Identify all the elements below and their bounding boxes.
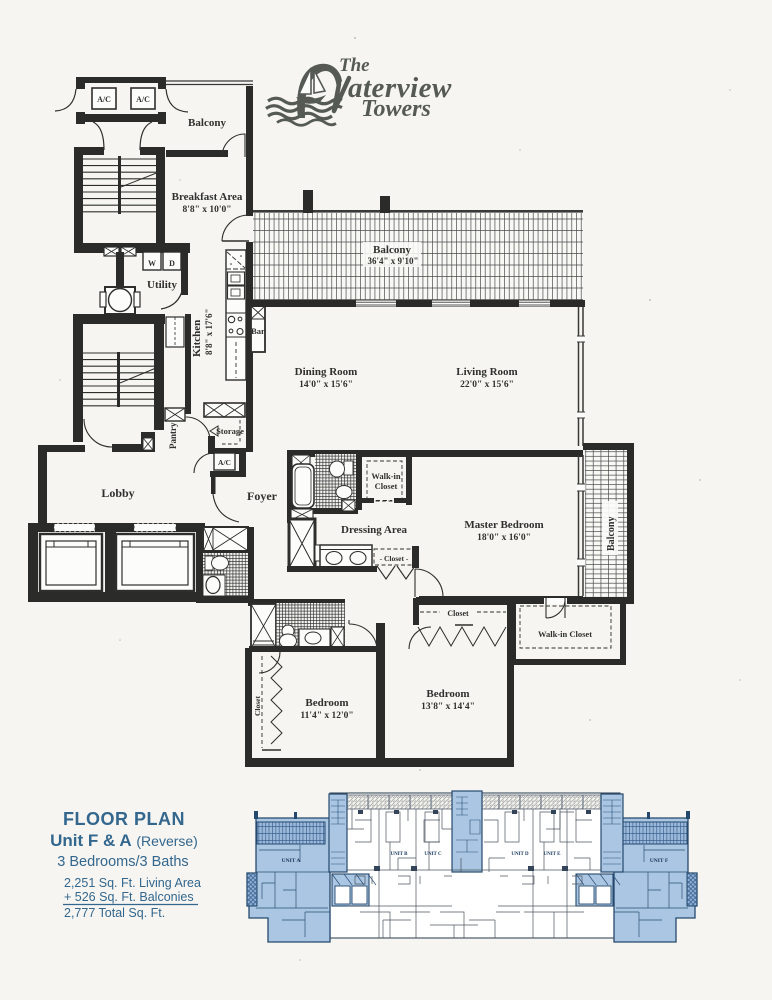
svg-text:Walk-in Closet: Walk-in Closet: [538, 629, 592, 639]
svg-text:Pantry: Pantry: [168, 422, 178, 449]
svg-text:UNIT A: UNIT A: [282, 858, 301, 864]
svg-text:+ 526 Sq. Ft. Balconies: + 526 Sq. Ft. Balconies: [64, 890, 194, 904]
svg-text:Closet: Closet: [253, 696, 262, 716]
svg-text:Storage: Storage: [216, 426, 244, 436]
svg-text:UNIT F: UNIT F: [650, 858, 669, 864]
svg-text:Living Room: Living Room: [456, 366, 517, 378]
svg-text:A/C: A/C: [97, 95, 111, 104]
svg-text:Master Bedroom: Master Bedroom: [464, 519, 543, 531]
svg-text:11'4" x 12'0": 11'4" x 12'0": [300, 711, 353, 721]
svg-text:8'8" x 10'0": 8'8" x 10'0": [182, 205, 231, 215]
svg-text:Closet: Closet: [375, 481, 398, 491]
svg-text:Bedroom: Bedroom: [426, 688, 469, 700]
svg-text:UNIT D: UNIT D: [511, 852, 529, 857]
svg-text:Balcony: Balcony: [188, 117, 226, 129]
svg-text:W: W: [148, 259, 156, 268]
svg-text:D: D: [169, 259, 175, 268]
svg-text:Balcony: Balcony: [606, 517, 617, 551]
svg-text:Walk-in: Walk-in: [371, 471, 401, 481]
svg-text:FLOOR PLAN: FLOOR PLAN: [63, 809, 185, 829]
svg-text:UNIT B: UNIT B: [391, 852, 409, 857]
svg-text:A/C: A/C: [136, 95, 150, 104]
svg-text:Bedroom: Bedroom: [305, 697, 348, 709]
svg-text:Utility: Utility: [147, 279, 177, 291]
svg-text:Kitchen: Kitchen: [191, 320, 203, 357]
svg-text:Balcony: Balcony: [373, 244, 411, 256]
svg-text:13'8" x 14'4": 13'8" x 14'4": [421, 702, 475, 712]
svg-text:2,251 Sq. Ft. Living Area: 2,251 Sq. Ft. Living Area: [64, 876, 201, 890]
svg-text:- Closet -: - Closet -: [380, 554, 409, 563]
svg-text:14'0" x 15'6": 14'0" x 15'6": [299, 380, 353, 390]
svg-text:Bar: Bar: [251, 326, 265, 336]
svg-text:Breakfast Area: Breakfast Area: [172, 191, 243, 203]
svg-text:18'0" x 16'0": 18'0" x 16'0": [477, 533, 531, 543]
svg-text:Unit F & A (Reverse): Unit F & A (Reverse): [50, 831, 198, 850]
svg-text:Dining Room: Dining Room: [295, 366, 358, 378]
svg-text:36'4" x 9'10": 36'4" x 9'10": [368, 256, 419, 266]
svg-text:3 Bedrooms/3 Baths: 3 Bedrooms/3 Baths: [57, 854, 188, 870]
svg-text:A/C: A/C: [218, 458, 231, 467]
svg-text:Foyer: Foyer: [247, 489, 278, 503]
svg-text:Towers: Towers: [361, 96, 431, 122]
svg-text:UNIT E: UNIT E: [544, 852, 562, 857]
svg-text:Lobby: Lobby: [101, 486, 134, 500]
svg-text:UNIT C: UNIT C: [424, 852, 442, 857]
svg-text:8'8" x 17'6": 8'8" x 17'6": [204, 309, 214, 356]
svg-text:Dressing Area: Dressing Area: [341, 524, 407, 536]
svg-text:22'0" x 15'6": 22'0" x 15'6": [460, 380, 514, 390]
svg-text:2,777 Total Sq. Ft.: 2,777 Total Sq. Ft.: [64, 906, 165, 920]
svg-text:Closet: Closet: [447, 609, 469, 618]
